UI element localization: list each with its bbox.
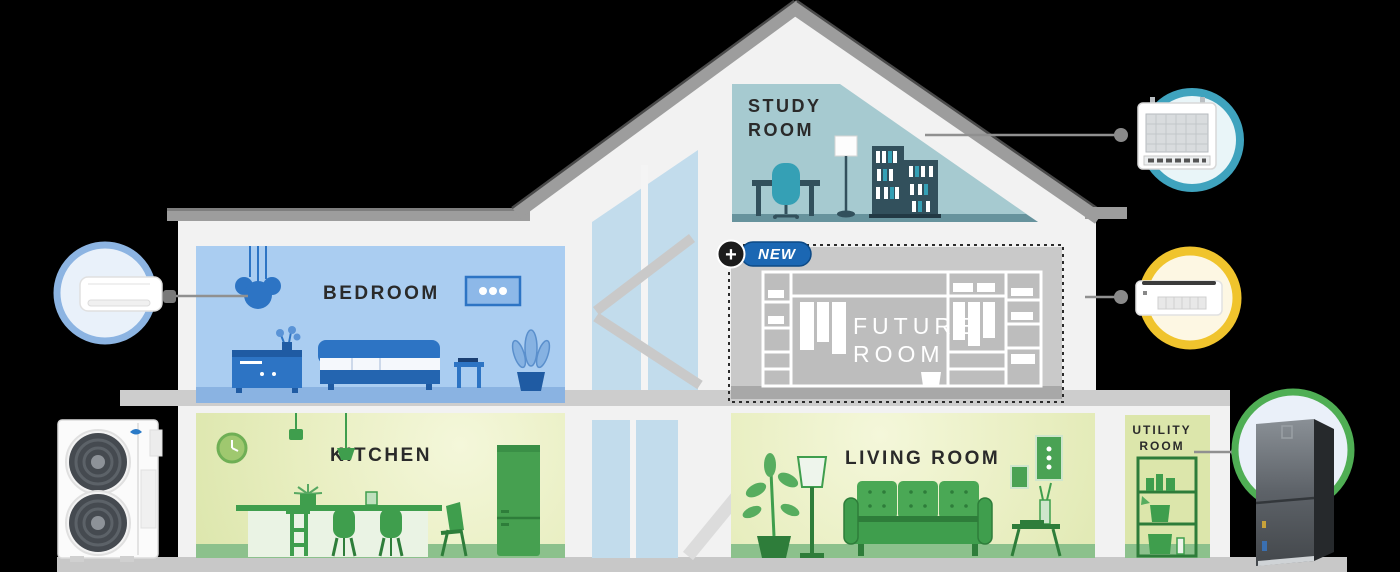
kitchen: KITCHEN: [196, 413, 565, 558]
lower-window-mullion: [630, 420, 636, 558]
callout-slim-duct[interactable]: [1085, 251, 1237, 345]
wall-mounted-indoor-unit-icon: [80, 277, 162, 311]
callout-line-dot: [1114, 128, 1128, 142]
flat-roof-edge: [167, 208, 530, 211]
future-room-label-line2: ROOM: [853, 341, 945, 367]
air-handler-unit-icon: [1256, 419, 1334, 566]
slim-duct-indoor-unit-icon: [1136, 281, 1222, 315]
bedroom-label: BEDROOM: [323, 283, 440, 304]
living-room-label: LIVING ROOM: [845, 448, 1000, 469]
ground-base: [57, 557, 1347, 572]
future-room-label-line1: FUTURE: [853, 313, 976, 339]
utility-label-line2: ROOM: [1139, 439, 1184, 453]
house-cutaway-scene: BEDROOM: [0, 0, 1400, 572]
wall-art: [466, 277, 520, 305]
bed: [318, 340, 440, 390]
study-label-line2: ROOM: [748, 120, 814, 140]
outdoor-fan-top: [66, 430, 130, 494]
outdoor-fan-bottom: [66, 491, 130, 555]
new-badge[interactable]: + NEW: [718, 241, 812, 268]
living-room: LIVING ROOM: [731, 413, 1095, 558]
new-badge-plus: +: [725, 244, 737, 266]
house-cutaway-illustration: BEDROOM: [0, 0, 1400, 572]
ceiling-cassette-indoor-unit-icon: [1138, 97, 1216, 169]
wall-clock: [218, 434, 246, 462]
utility-label-line1: UTILITY: [1132, 423, 1191, 437]
outdoor-unit-icon: [58, 420, 162, 562]
refrigerator: [497, 445, 540, 556]
bedroom: BEDROOM: [196, 246, 565, 403]
bedroom-floor: [196, 387, 565, 403]
callout-line-dot: [1114, 290, 1128, 304]
shelf-bottle: [1177, 538, 1184, 554]
roof-right-cap: [1085, 207, 1127, 219]
future-room: FUTURE ROOM + NEW: [718, 241, 1064, 403]
counter-glass: [366, 492, 377, 505]
study-label-line1: STUDY: [748, 96, 822, 116]
utility-room: UTILITY ROOM: [1125, 415, 1210, 558]
future-room-floor: [731, 386, 1062, 399]
callout-line-dot: [163, 290, 176, 303]
new-badge-text: NEW: [758, 246, 797, 263]
